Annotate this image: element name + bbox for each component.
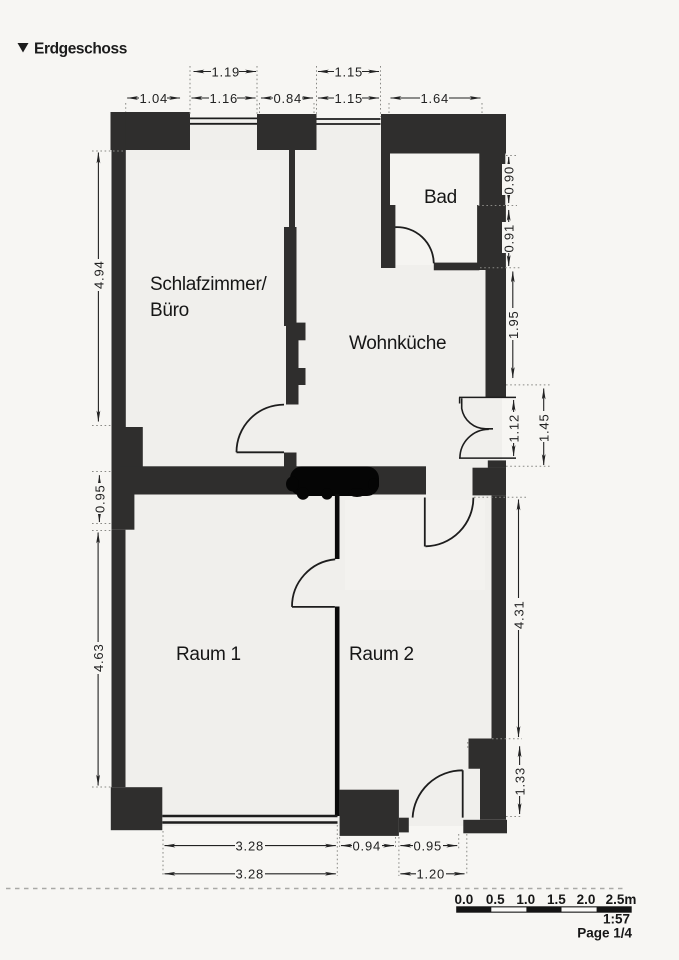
svg-text:Raum 1: Raum 1 [176,644,241,665]
svg-text:1.33: 1.33 [513,767,528,796]
svg-text:0.95: 0.95 [93,484,108,513]
svg-text:Raum 2: Raum 2 [349,644,414,665]
svg-text:0.94: 0.94 [353,839,382,854]
svg-text:4.31: 4.31 [512,600,527,629]
svg-text:1.0: 1.0 [516,892,535,907]
svg-text:0.5: 0.5 [486,892,505,907]
svg-text:1.5: 1.5 [547,892,566,907]
svg-text:Schlafzimmer/: Schlafzimmer/ [150,274,267,295]
svg-text:4.94: 4.94 [92,260,107,289]
svg-text:3.28: 3.28 [236,839,265,854]
svg-text:3.28: 3.28 [236,867,265,882]
svg-text:0.90: 0.90 [502,166,517,195]
svg-text:1.95: 1.95 [506,310,521,339]
svg-text:1.12: 1.12 [507,414,522,443]
svg-text:Page 1/4: Page 1/4 [577,926,632,941]
svg-text:0.84: 0.84 [274,91,303,106]
svg-text:Bad: Bad [424,187,457,208]
svg-text:1.20: 1.20 [417,867,446,882]
svg-text:0.95: 0.95 [414,839,443,854]
svg-text:Wohnküche: Wohnküche [349,333,446,354]
svg-text:0.0: 0.0 [455,892,474,907]
svg-text:1.16: 1.16 [210,91,239,106]
svg-text:1.19: 1.19 [212,65,241,80]
svg-text:0.91: 0.91 [502,224,517,253]
svg-text:4.63: 4.63 [91,643,106,672]
svg-text:1.64: 1.64 [421,91,450,106]
svg-text:2.5m: 2.5m [606,892,637,907]
svg-text:1.45: 1.45 [537,413,552,442]
svg-text:Erdgeschoss: Erdgeschoss [34,41,127,58]
svg-text:2.0: 2.0 [577,892,596,907]
svg-text:1:57: 1:57 [603,912,630,927]
svg-text:Büro: Büro [150,300,189,321]
svg-text:1.04: 1.04 [140,91,169,106]
svg-text:1.15: 1.15 [335,91,364,106]
svg-text:1.15: 1.15 [335,65,364,80]
